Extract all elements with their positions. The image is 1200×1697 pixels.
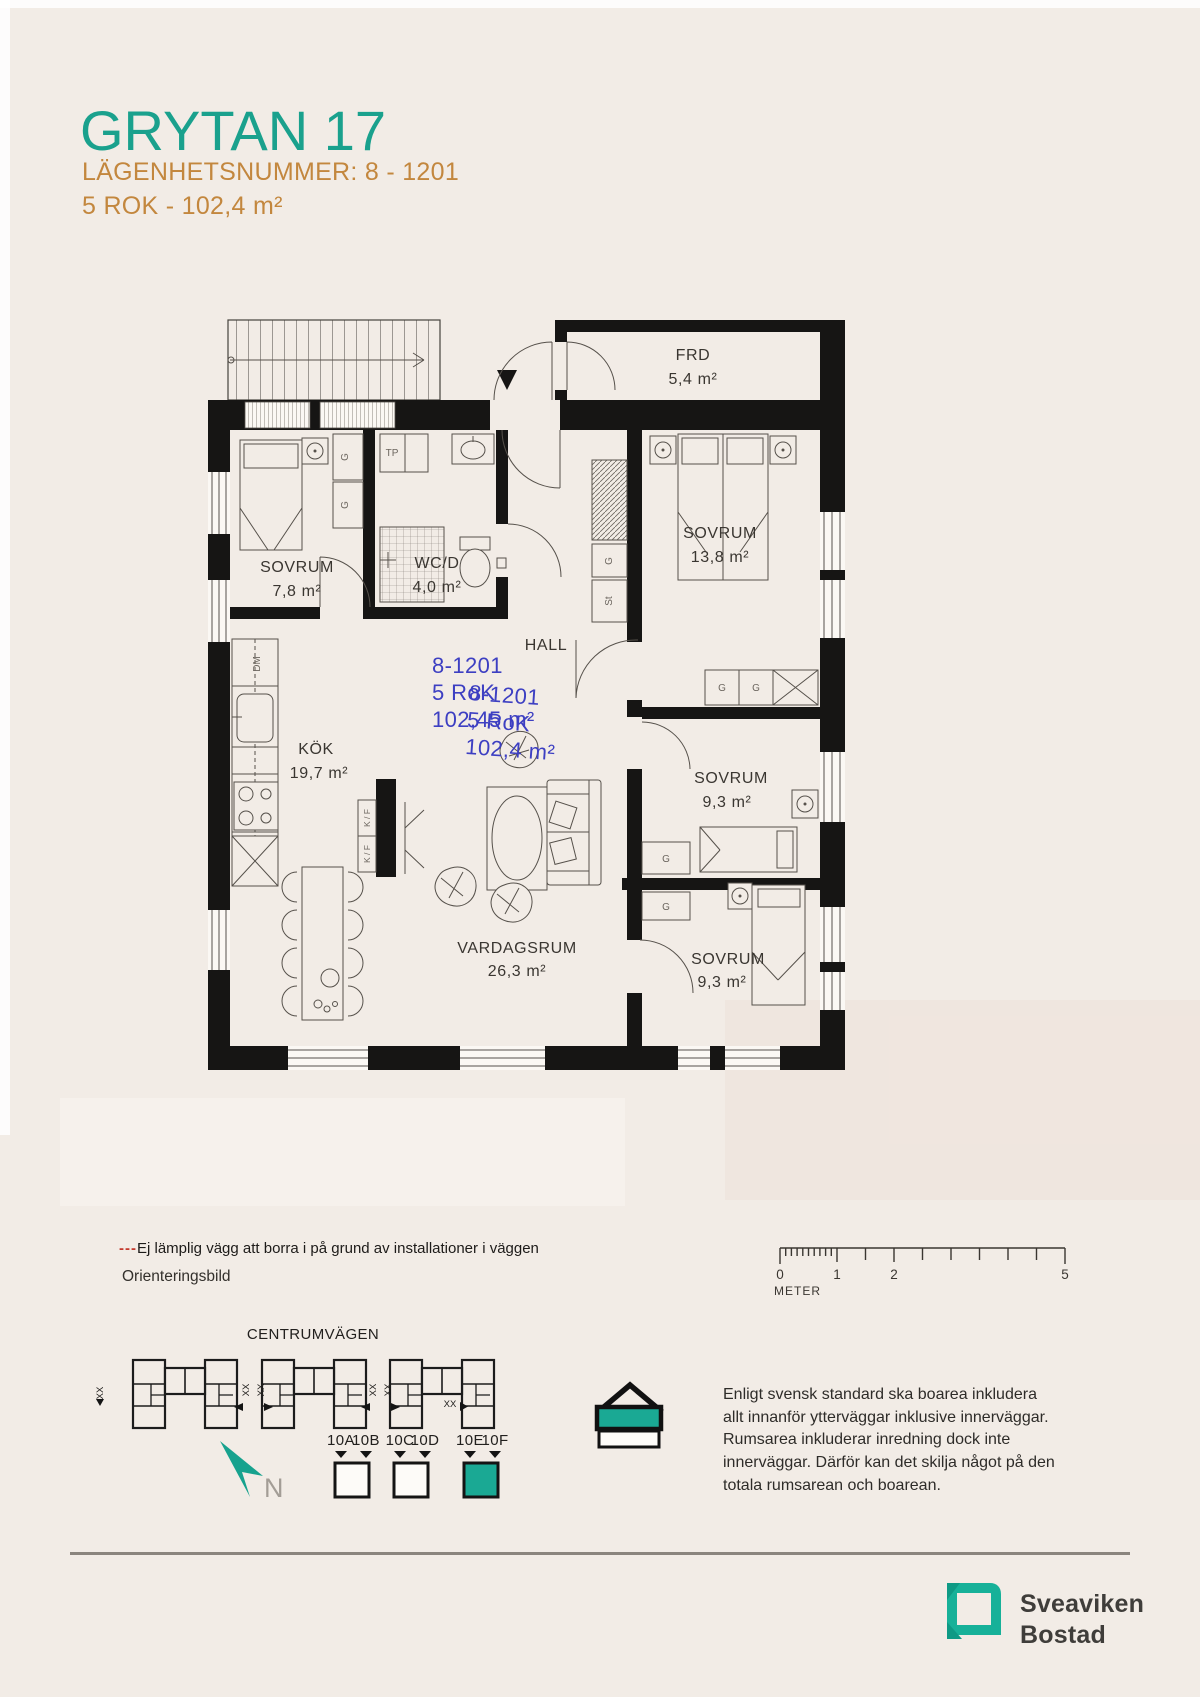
svg-text:DM: DM <box>252 656 263 672</box>
building-footprint <box>390 1360 494 1428</box>
svg-text:K / F: K / F <box>362 809 372 827</box>
wardrobe-row-icon: G G <box>705 670 818 705</box>
room-label-kok: KÖK <box>298 740 334 758</box>
room-label-vardagsrum: VARDAGSRUM <box>457 940 577 957</box>
svg-text:5: 5 <box>1061 1267 1069 1282</box>
room-label-sovrum-1: SOVRUM <box>260 559 334 576</box>
footer-divider <box>70 1552 1130 1555</box>
svg-text:4,0 m²: 4,0 m² <box>413 579 462 596</box>
svg-text:102,4 m²: 102,4 m² <box>464 734 556 765</box>
sveaviken-logo-icon <box>938 1578 1004 1644</box>
bed-icon <box>240 438 328 550</box>
scan-tint <box>60 1098 625 1206</box>
svg-text:10F: 10F <box>481 1432 508 1449</box>
brand-line-1: Sveaviken <box>1020 1589 1144 1620</box>
tv-icon <box>405 802 424 874</box>
unit-square-10ab <box>335 1463 369 1497</box>
svg-text:XX: XX <box>95 1386 106 1399</box>
staircase <box>228 320 440 400</box>
unit-square-10cd <box>394 1463 428 1497</box>
apartment-stamp-2: 8-1201 5 RoK 102,4 m² <box>464 680 559 765</box>
frd-door <box>567 342 615 390</box>
svg-text:G: G <box>340 501 351 509</box>
svg-text:5,4 m²: 5,4 m² <box>669 371 718 388</box>
room-label-frd: FRD <box>676 347 711 364</box>
room-label-hall: HALL <box>525 637 567 654</box>
svg-text:G: G <box>340 453 351 461</box>
svg-text:XX: XX <box>256 1383 267 1396</box>
wardrobe-icon: G G <box>333 434 363 528</box>
boarea-note: Enligt svensk standard ska boarea inklud… <box>723 1384 1055 1498</box>
legend-not-drillable: ---Ej lämplig vägg att borra i på grund … <box>119 1240 539 1257</box>
svg-text:K / F: K / F <box>362 845 372 863</box>
svg-text:G: G <box>752 683 760 694</box>
floorplan-page: GRYTAN 17 LÄGENHETSNUMMER: 8 - 1201 5 RO… <box>0 0 1200 1697</box>
svg-text:XX: XX <box>368 1383 379 1396</box>
unit-square-10ef-highlighted <box>464 1463 498 1497</box>
svg-text:26,3 m²: 26,3 m² <box>488 963 547 980</box>
dining-table-icon <box>282 867 363 1020</box>
svg-text:10D: 10D <box>411 1432 440 1449</box>
svg-text:XX: XX <box>383 1383 394 1396</box>
svg-text:G: G <box>662 854 670 865</box>
svg-text:10E: 10E <box>456 1432 484 1449</box>
orientation-diagram: CENTRUMVÄGEN XX XX XX XX XX XX 10A 10B 1… <box>80 1315 560 1515</box>
floor-plan: G G TP G St <box>200 312 850 1082</box>
room-label-sovrum-2: SOVRUM <box>683 525 757 542</box>
room-label-sovrum-4: SOVRUM <box>691 951 765 968</box>
svg-text:N: N <box>264 1473 284 1503</box>
brand-line-2: Bostad <box>1020 1620 1144 1651</box>
floor-indicator-icon <box>592 1378 672 1450</box>
building-footprint <box>262 1360 366 1428</box>
unit-labels: 10A 10B 10C 10D 10E 10F <box>327 1432 508 1458</box>
scan-edge-top <box>0 0 1200 8</box>
orientation-title: Orienteringsbild <box>122 1268 231 1286</box>
svg-text:St: St <box>604 596 615 606</box>
svg-text:9,3 m²: 9,3 m² <box>703 794 752 811</box>
svg-text:1: 1 <box>833 1267 841 1282</box>
scale-unit: METER <box>774 1284 821 1298</box>
svg-text:XX: XX <box>444 1399 457 1410</box>
fridge-freezer-icon: K / F K / F <box>358 800 376 872</box>
building-footprint <box>133 1360 237 1428</box>
apartment-size: 5 ROK - 102,4 m² <box>82 192 283 221</box>
north-arrow-icon: N <box>220 1441 284 1503</box>
svg-text:10A: 10A <box>327 1432 355 1449</box>
svg-text:G: G <box>662 902 670 913</box>
sofa-icon <box>547 780 601 885</box>
svg-text:XX: XX <box>241 1383 252 1396</box>
svg-text:G: G <box>718 683 726 694</box>
svg-text:G: G <box>604 557 615 565</box>
svg-text:TP: TP <box>386 448 399 459</box>
scan-edge-left <box>0 0 10 1135</box>
apartment-number: LÄGENHETSNUMMER: 8 - 1201 <box>82 158 459 187</box>
scale-bar: 0 1 2 5 METER <box>770 1238 1080 1300</box>
brand-name: Sveaviken Bostad <box>1020 1589 1144 1650</box>
svg-text:8-1201: 8-1201 <box>468 680 540 710</box>
svg-text:13,8 m²: 13,8 m² <box>691 549 750 566</box>
svg-text:8-1201: 8-1201 <box>432 653 503 678</box>
room-label-sovrum-3: SOVRUM <box>694 770 768 787</box>
svg-text:5 RoK: 5 RoK <box>466 707 531 736</box>
svg-text:19,7 m²: 19,7 m² <box>290 765 349 782</box>
street-label: CENTRUMVÄGEN <box>247 1326 379 1343</box>
page-title: GRYTAN 17 <box>80 98 386 163</box>
room-label-wcd: WC/D <box>414 555 459 572</box>
kitchen-counter: DM <box>232 639 278 886</box>
legend-dash-icon: --- <box>119 1240 137 1257</box>
armchair-icon <box>435 867 532 922</box>
svg-text:10B: 10B <box>352 1432 380 1449</box>
svg-text:7,8 m²: 7,8 m² <box>273 583 322 600</box>
bathroom-fixtures: TP <box>380 434 506 602</box>
svg-text:0: 0 <box>776 1267 784 1282</box>
svg-text:2: 2 <box>890 1267 898 1282</box>
hall-closet: G St <box>592 460 627 622</box>
svg-text:9,3 m²: 9,3 m² <box>698 974 747 991</box>
unit-squares <box>335 1463 498 1497</box>
legend-text: Ej lämplig vägg att borra i på grund av … <box>137 1240 539 1257</box>
rug-icon <box>487 787 547 890</box>
